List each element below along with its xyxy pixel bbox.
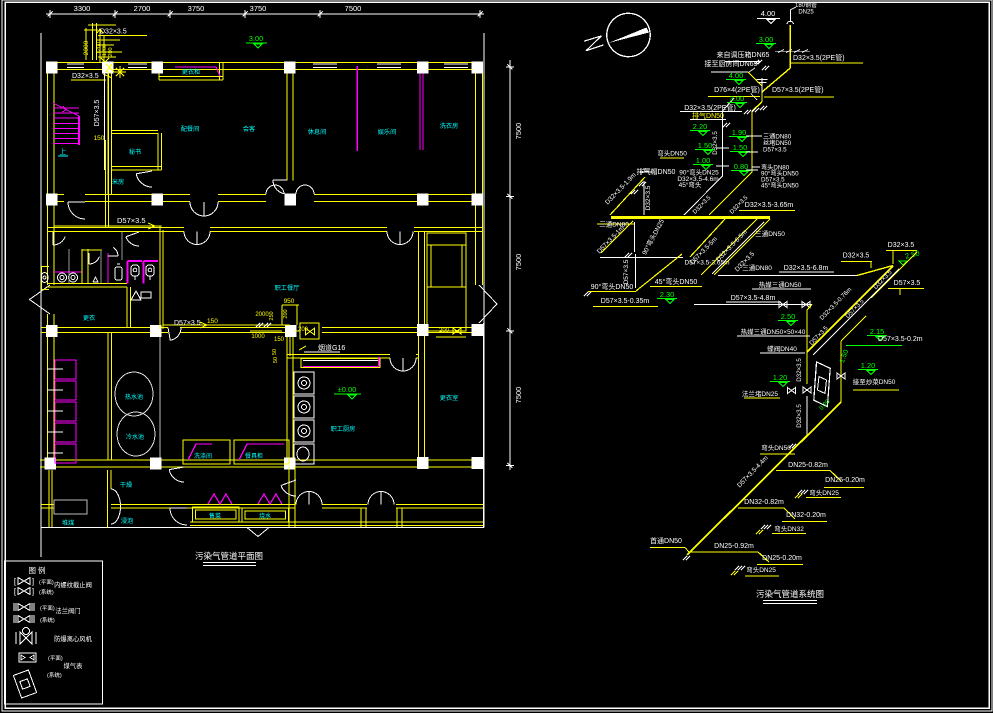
svg-text:50: 50 xyxy=(272,349,278,355)
svg-text:D32×3.5: D32×3.5 xyxy=(888,242,915,249)
svg-text:3750: 3750 xyxy=(250,4,267,13)
svg-text:(平面): (平面) xyxy=(48,655,63,662)
svg-text:弯头DN50: 弯头DN50 xyxy=(761,443,791,452)
svg-text:D57×3.5-0.35m: D57×3.5-0.35m xyxy=(601,298,650,305)
svg-text:1.20: 1.20 xyxy=(773,373,788,382)
svg-text:配餐间: 配餐间 xyxy=(181,125,200,133)
svg-text:娱乐间: 娱乐间 xyxy=(378,128,397,136)
svg-text:堆煤: 堆煤 xyxy=(62,519,74,527)
svg-text:4.00: 4.00 xyxy=(729,71,744,80)
svg-text:DN32-0.20m: DN32-0.20m xyxy=(786,512,826,519)
svg-text:DN25-0.20m: DN25-0.20m xyxy=(762,555,802,562)
svg-text:2.15: 2.15 xyxy=(870,327,885,336)
svg-text:弯头DN32: 弯头DN32 xyxy=(774,524,804,533)
svg-text:污染气管道平面图: 污染气管道平面图 xyxy=(195,551,263,561)
svg-text:]: ] xyxy=(32,587,34,596)
svg-text:DN25: DN25 xyxy=(798,10,814,16)
svg-text:1.20: 1.20 xyxy=(861,361,876,370)
svg-text:接至炒菜DN50: 接至炒菜DN50 xyxy=(853,377,896,386)
svg-text:首通DN50: 首通DN50 xyxy=(650,536,682,545)
svg-text:干燥: 干燥 xyxy=(120,481,133,489)
svg-text:D57×3.5: D57×3.5 xyxy=(894,280,921,287)
svg-text:250: 250 xyxy=(269,311,275,320)
svg-text:3.00: 3.00 xyxy=(759,35,774,44)
svg-text:烧水: 烧水 xyxy=(259,512,271,520)
svg-text:蝶阀DN40: 蝶阀DN40 xyxy=(767,344,797,353)
svg-text:D32×3.5-3.65m: D32×3.5-3.65m xyxy=(745,202,794,209)
svg-text:洗涤间: 洗涤间 xyxy=(194,452,212,460)
svg-text:2700: 2700 xyxy=(134,4,151,13)
svg-text:D32×3.5: D32×3.5 xyxy=(843,253,870,260)
svg-text:3.00: 3.00 xyxy=(249,34,264,43)
svg-text:煤气表: 煤气表 xyxy=(64,661,84,670)
svg-text:D57×3.5: D57×3.5 xyxy=(117,216,146,225)
svg-text:DN25-0.82m: DN25-0.82m xyxy=(788,462,828,469)
svg-text:排气DN50: 排气DN50 xyxy=(692,111,724,120)
svg-text:休息间: 休息间 xyxy=(308,128,327,136)
svg-text:150: 150 xyxy=(94,135,105,142)
svg-text:三通DN80: 三通DN80 xyxy=(742,263,772,272)
svg-text:弯头DN25: 弯头DN25 xyxy=(809,488,839,497)
svg-text:D32×3.5: D32×3.5 xyxy=(712,131,719,155)
svg-text:2.20: 2.20 xyxy=(693,122,708,131)
svg-text:45°弯头DN50: 45°弯头DN50 xyxy=(761,182,799,190)
svg-text:洗衣房: 洗衣房 xyxy=(440,122,459,130)
svg-text:7500: 7500 xyxy=(514,254,523,271)
svg-text:D57×3.5: D57×3.5 xyxy=(94,100,101,127)
svg-text:接至厨房间DN65: 接至厨房间DN65 xyxy=(705,59,758,68)
svg-text:上: 上 xyxy=(60,147,67,156)
svg-text:防爆离心风机: 防爆离心风机 xyxy=(54,634,92,643)
svg-text:D32×3.5: D32×3.5 xyxy=(796,358,803,382)
svg-text:1.90: 1.90 xyxy=(732,128,747,137)
svg-text:D32×3.5(2PE管): D32×3.5(2PE管) xyxy=(684,103,736,112)
svg-text:更衣: 更衣 xyxy=(83,314,95,322)
svg-text:200: 200 xyxy=(439,328,450,334)
svg-text:污染气管道系统图: 污染气管道系统图 xyxy=(756,589,824,599)
svg-text:2000: 2000 xyxy=(255,312,269,318)
svg-text:3.00: 3.00 xyxy=(730,94,745,103)
svg-text:1.50: 1.50 xyxy=(698,141,713,150)
svg-text:D57×3.5-4.8m: D57×3.5-4.8m xyxy=(731,295,776,302)
svg-text:D32×3.5-6.8m: D32×3.5-6.8m xyxy=(784,265,829,272)
svg-text:1000: 1000 xyxy=(251,334,265,340)
svg-text:90°弯头DN50: 90°弯头DN50 xyxy=(591,282,634,291)
svg-text:45°弯头DN50: 45°弯头DN50 xyxy=(655,277,698,286)
svg-text:法兰堵DN25: 法兰堵DN25 xyxy=(742,389,779,398)
svg-text:弯头DN25: 弯头DN25 xyxy=(746,565,776,574)
svg-text:(系统): (系统) xyxy=(47,671,62,679)
svg-text:D57×3.5: D57×3.5 xyxy=(174,320,201,327)
svg-text:D76×4(2PE管): D76×4(2PE管) xyxy=(714,85,760,94)
svg-text:D32×3.5: D32×3.5 xyxy=(100,29,127,36)
svg-text:米房: 米房 xyxy=(112,178,124,186)
svg-text:秘书: 秘书 xyxy=(129,148,141,156)
svg-text:D32×3.5: D32×3.5 xyxy=(645,185,652,210)
svg-text:冷水池: 冷水池 xyxy=(126,433,144,441)
svg-text:售菜: 售菜 xyxy=(209,512,221,520)
svg-text:D57×3.5-0.2m: D57×3.5-0.2m xyxy=(878,336,923,343)
svg-text:餐具柜: 餐具柜 xyxy=(245,452,263,460)
svg-text:弯头DN50: 弯头DN50 xyxy=(657,149,687,158)
svg-text:更衣柜: 更衣柜 xyxy=(182,68,201,76)
svg-text:浸泡: 浸泡 xyxy=(121,517,133,525)
svg-text:D57×3.5: D57×3.5 xyxy=(623,259,630,284)
svg-text:200: 200 xyxy=(283,309,289,318)
svg-text:50: 50 xyxy=(273,357,279,363)
svg-text:三通DN80: 三通DN80 xyxy=(599,220,629,229)
svg-text:1.00: 1.00 xyxy=(696,156,711,165)
svg-text:180钢管: 180钢管 xyxy=(795,1,817,9)
svg-text:±0.00: ±0.00 xyxy=(338,385,357,394)
svg-text:45°弯头: 45°弯头 xyxy=(679,180,702,189)
svg-text:热水池: 热水池 xyxy=(125,393,143,401)
svg-text:3300: 3300 xyxy=(74,4,91,13)
svg-text:职工厨房: 职工厨房 xyxy=(331,425,356,433)
svg-text:150: 150 xyxy=(207,318,218,325)
svg-text:三通DN50: 三通DN50 xyxy=(755,229,785,238)
svg-text:(系统): (系统) xyxy=(39,588,54,596)
svg-text:来自调压箱DN65: 来自调压箱DN65 xyxy=(717,50,770,59)
svg-text:]: ] xyxy=(32,577,34,586)
svg-text:7500: 7500 xyxy=(514,387,523,404)
svg-text:(系统): (系统) xyxy=(40,616,55,624)
svg-text:3750: 3750 xyxy=(188,4,205,13)
svg-text:D57×3.5(2PE管): D57×3.5(2PE管) xyxy=(772,85,824,94)
svg-text:D32×3.5(2PE管): D32×3.5(2PE管) xyxy=(793,53,845,62)
svg-text:DN25-0.20m: DN25-0.20m xyxy=(825,477,865,484)
svg-text:热媒三通DN50: 热媒三通DN50 xyxy=(759,280,802,289)
svg-text:热媒三通DN50×50×40: 热媒三通DN50×50×40 xyxy=(741,327,806,336)
svg-text:(平面): (平面) xyxy=(40,605,55,612)
svg-text:会客: 会客 xyxy=(243,125,255,133)
svg-text:7500: 7500 xyxy=(345,4,362,13)
svg-text:2.50: 2.50 xyxy=(781,312,796,321)
svg-text:150: 150 xyxy=(274,337,285,343)
svg-text:更衣室: 更衣室 xyxy=(440,394,459,402)
svg-text:2.30: 2.30 xyxy=(660,290,675,299)
svg-text:1.50: 1.50 xyxy=(733,143,748,152)
svg-text:职工餐厅: 职工餐厅 xyxy=(275,284,300,292)
svg-text:内螺纹截止阀: 内螺纹截止阀 xyxy=(54,580,92,589)
svg-text:DN25-0.92m: DN25-0.92m xyxy=(714,543,754,550)
svg-text:D32×3.5: D32×3.5 xyxy=(72,73,99,80)
svg-text:D57×3.5: D57×3.5 xyxy=(763,147,787,154)
svg-text:图 例: 图 例 xyxy=(28,565,45,575)
svg-text:(平面): (平面) xyxy=(39,579,54,586)
svg-text:DN32-0.82m: DN32-0.82m xyxy=(744,499,784,506)
svg-text:法兰阀门: 法兰阀门 xyxy=(55,606,80,615)
svg-text:烟道G16: 烟道G16 xyxy=(318,343,345,352)
svg-text:7500: 7500 xyxy=(514,123,523,140)
svg-text:950: 950 xyxy=(284,298,295,305)
svg-text:4.00: 4.00 xyxy=(761,9,776,18)
svg-text:D32×3.5: D32×3.5 xyxy=(796,404,803,428)
